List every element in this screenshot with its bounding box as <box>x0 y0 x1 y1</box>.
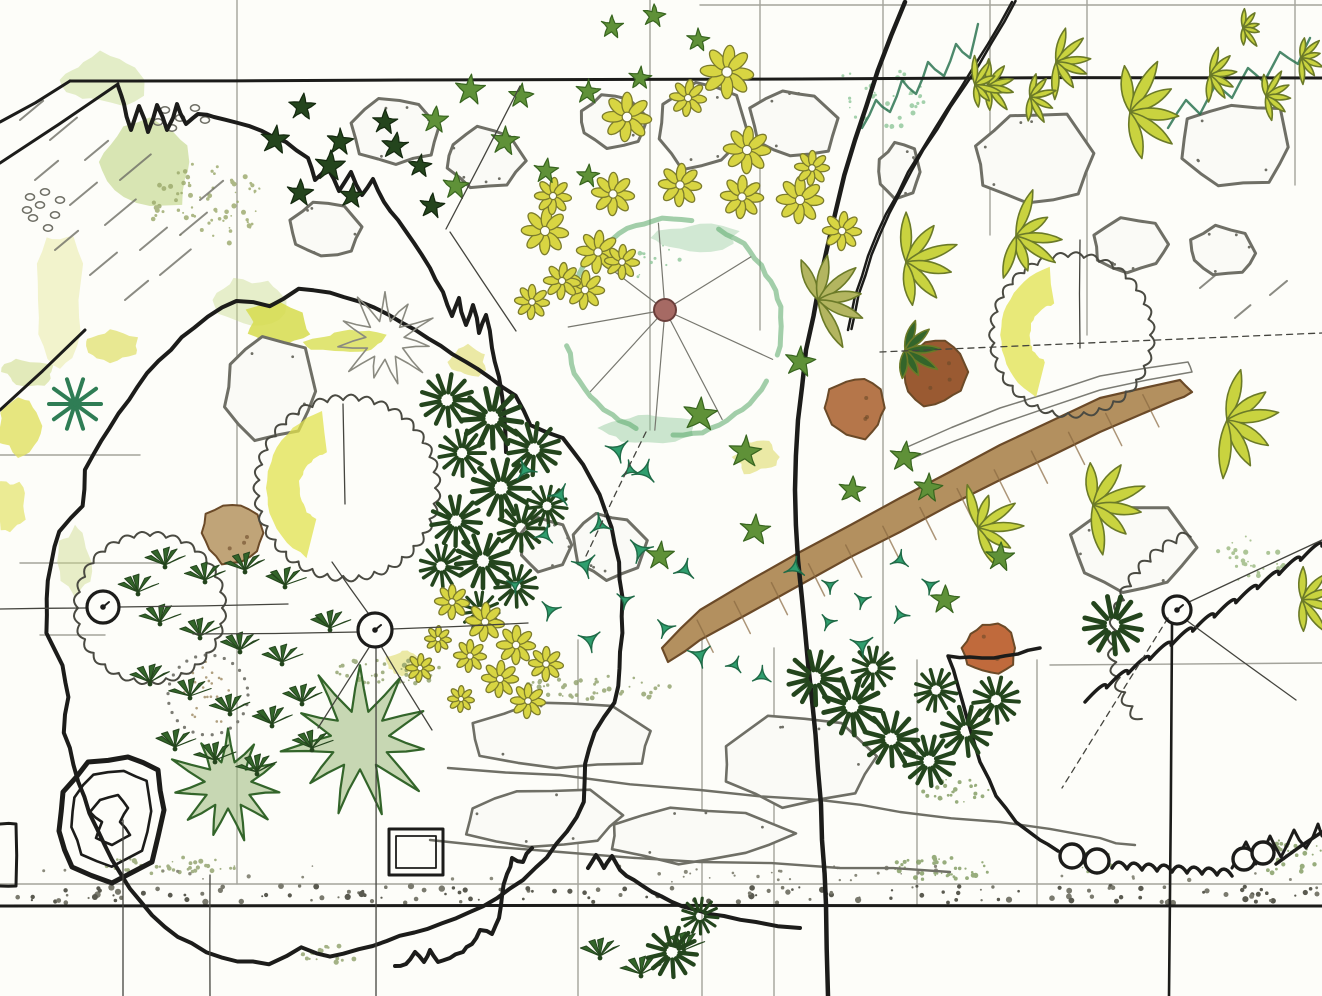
gravel-dot <box>671 881 673 883</box>
gravel-dot <box>261 895 263 897</box>
gravel-dot <box>112 894 114 896</box>
speckle-dot <box>558 693 562 697</box>
stone-texture-dot <box>452 147 455 150</box>
speckle-dot <box>216 165 219 168</box>
gravel-dot <box>785 889 790 894</box>
boulder-texture <box>982 635 986 639</box>
speckle-dot <box>973 792 977 796</box>
gravel-dot <box>798 886 800 888</box>
speckle-dot <box>1281 862 1285 866</box>
ray <box>456 562 475 564</box>
speckle-dot <box>200 228 204 232</box>
speckle-dot <box>316 958 318 960</box>
stone-texture-dot <box>310 207 313 210</box>
speckle-dot <box>885 101 890 106</box>
speckle-dot <box>849 73 851 75</box>
speckle-dot <box>381 678 384 681</box>
speckle-dot <box>986 871 989 874</box>
gravel-dot <box>915 885 918 888</box>
speckle-dot <box>1247 561 1249 563</box>
speckle-dot <box>1231 542 1233 544</box>
gravel-dot <box>312 865 314 867</box>
speckle-dot <box>1275 550 1280 555</box>
gravel-dot <box>278 883 284 889</box>
dotted-edge <box>168 682 171 685</box>
speckle-dot <box>884 124 888 128</box>
speckle-dot <box>918 95 921 98</box>
stone-texture-dot <box>673 812 676 815</box>
stone-texture-dot <box>525 840 528 843</box>
speckle-dot <box>1287 850 1289 852</box>
gravel-dot <box>63 888 67 892</box>
gravel-dot <box>522 898 525 901</box>
ray <box>535 423 537 441</box>
speckle-dot <box>596 692 598 694</box>
stone-texture-dot <box>779 726 782 729</box>
gravel-dot <box>736 899 741 904</box>
speckle-dot <box>537 685 542 690</box>
gravel-dot <box>218 888 223 893</box>
speckle-dot <box>172 861 174 863</box>
speckle-dot <box>1302 851 1307 856</box>
dotted-fill <box>227 689 230 692</box>
gravel-dot <box>422 888 427 893</box>
speckle-dot <box>654 686 658 690</box>
ray <box>553 507 567 509</box>
gravel-dot <box>850 879 852 881</box>
gravel-dot <box>645 896 648 899</box>
speckle-dot <box>874 94 877 97</box>
ray <box>967 738 969 755</box>
speckle-dot <box>162 210 165 213</box>
speckle-dot <box>654 257 657 260</box>
gravel-dot <box>1315 892 1320 897</box>
speckle-dot <box>335 671 339 675</box>
clump-base <box>283 585 288 590</box>
flower-center <box>684 94 691 101</box>
speckle-dot <box>641 252 644 255</box>
gravel-dot <box>31 899 33 901</box>
speckle-dot <box>341 664 345 668</box>
stone-texture-dot <box>1162 579 1165 582</box>
gravel-dot <box>1061 875 1064 878</box>
speckle-dot <box>971 873 976 878</box>
dotted-edge <box>238 669 241 672</box>
stone-texture-dot <box>690 158 693 161</box>
gravel-dot <box>168 893 173 898</box>
speckle-dot <box>899 123 904 128</box>
gravel-dot <box>1160 900 1164 904</box>
speckle-dot <box>233 867 236 870</box>
speckle-dot <box>1279 842 1283 846</box>
stone-texture-dot <box>589 104 592 107</box>
speckle-dot <box>925 794 929 798</box>
speckle-dot <box>637 275 640 278</box>
speckle-dot <box>951 873 953 875</box>
speckle-dot <box>401 668 403 670</box>
speckle-dot <box>352 957 357 962</box>
speckle-dot <box>249 182 252 185</box>
speckle-dot <box>191 214 194 217</box>
speckle-dot <box>334 960 339 965</box>
flower-center <box>458 696 463 701</box>
gravel-dot <box>298 884 301 887</box>
boulder-texture <box>928 386 932 390</box>
stone-texture-dot <box>716 155 719 158</box>
dotted-fill <box>220 720 223 723</box>
speckle-dot <box>231 203 236 208</box>
speckle-dot <box>974 785 976 787</box>
boulder-texture <box>245 535 249 539</box>
flower-center <box>435 636 440 641</box>
speckle-dot <box>958 780 962 784</box>
stone-texture-dot <box>476 812 479 815</box>
speckle-dot <box>958 867 962 871</box>
ray <box>472 489 492 492</box>
stone-texture-dot <box>502 753 505 756</box>
speckle-dot <box>404 673 408 677</box>
gravel-dot <box>596 887 601 892</box>
stone-texture-dot <box>555 793 558 796</box>
speckle-dot <box>189 861 193 865</box>
gravel-dot <box>1108 887 1111 890</box>
clump-base <box>255 772 260 777</box>
gravel-dot <box>88 897 90 899</box>
speckle-dot <box>935 785 939 789</box>
dotted-edge <box>236 720 239 723</box>
speckle-dot <box>849 107 851 109</box>
speckle-dot <box>913 875 918 880</box>
speckle-dot <box>227 241 232 246</box>
speckle-dot <box>132 858 137 863</box>
gravel-dot <box>781 886 785 890</box>
clump-base <box>173 747 178 752</box>
speckle-dot <box>204 864 208 868</box>
speckle-dot <box>1235 565 1238 568</box>
speckle-dot <box>177 171 180 174</box>
speckle-dot <box>954 867 957 870</box>
stone-texture-dot <box>291 355 294 358</box>
stone-texture-dot <box>648 851 651 854</box>
ray <box>495 587 510 588</box>
stone-texture-dot <box>498 177 501 180</box>
flower-center <box>549 192 556 199</box>
speckle-dot <box>907 859 910 862</box>
speckle-dot <box>168 184 173 189</box>
speckle-dot <box>345 674 349 678</box>
speckle-dot <box>562 695 564 697</box>
stone-texture-dot <box>354 233 357 236</box>
gravel-dot <box>789 878 791 880</box>
dotted-edge <box>185 659 188 662</box>
speckle-dot <box>593 691 596 694</box>
speckle-dot <box>916 860 921 865</box>
stone-texture-dot <box>716 96 719 99</box>
gravel-dot <box>288 893 292 897</box>
speckle-dot <box>193 860 197 864</box>
gravel-dot <box>777 878 780 881</box>
speckle-dot <box>633 677 636 680</box>
speckle-dot <box>1249 539 1251 541</box>
speckle-dot <box>649 691 653 695</box>
ray <box>935 696 936 711</box>
gravel-dot <box>468 897 473 902</box>
ray <box>447 567 462 569</box>
speckle-dot <box>668 249 670 251</box>
flower-symbol <box>543 262 581 300</box>
speckle-dot <box>1245 536 1247 538</box>
ray <box>1003 701 1019 702</box>
speckle-dot <box>254 192 256 194</box>
gravel-dot <box>337 896 339 898</box>
gravel-dot <box>980 899 982 901</box>
gravel-dot <box>809 898 812 901</box>
gravel-dot <box>657 872 661 876</box>
gravel-dot <box>184 897 189 902</box>
stone-texture-dot <box>1265 168 1268 171</box>
speckle-dot <box>947 794 950 797</box>
ray <box>442 572 443 587</box>
speckle-dot <box>981 861 983 863</box>
ray <box>672 959 673 976</box>
speckle-dot <box>903 860 907 864</box>
speckle-dot <box>546 683 549 686</box>
flower-center <box>795 195 804 204</box>
gravel-dot <box>946 901 950 905</box>
ray <box>431 522 448 525</box>
speckle-dot <box>150 872 154 876</box>
gravel-dot <box>695 868 697 870</box>
speckle-dot <box>182 212 184 214</box>
gravel-dot <box>64 900 69 905</box>
dotted-edge <box>170 711 173 714</box>
gravel-dot <box>1309 887 1313 891</box>
gravel-dot <box>911 886 913 888</box>
gravel-dot <box>15 895 20 900</box>
gravel-dot <box>582 890 587 895</box>
gravel-dot <box>247 874 251 878</box>
speckle-dot <box>206 197 210 201</box>
speckle-dot <box>890 126 893 129</box>
stone-texture-dot <box>992 183 995 186</box>
speckle-dot <box>337 944 342 949</box>
speckle-dot <box>246 218 249 221</box>
speckle-dot <box>898 70 902 74</box>
flower-center <box>594 248 602 256</box>
gravel-dot <box>463 887 468 892</box>
ray <box>1122 626 1142 629</box>
ray <box>527 507 541 509</box>
speckle-dot <box>951 791 953 793</box>
speckle-dot <box>162 186 167 191</box>
speckle-dot <box>188 182 190 184</box>
speckle-dot <box>241 210 246 215</box>
gravel-bottom-rule <box>0 905 1322 906</box>
gravel-dot <box>162 870 165 873</box>
gravel-dot <box>954 898 958 902</box>
dotted-fill <box>203 696 206 699</box>
dotted-edge <box>242 712 245 715</box>
dotted-edge <box>176 719 179 722</box>
speckle-dot <box>325 945 328 948</box>
gravel-dot <box>490 877 494 881</box>
speckle-dot <box>223 215 228 220</box>
speckle-dot <box>177 209 180 212</box>
dotted-fill <box>201 666 204 669</box>
gravel-dot <box>1132 877 1135 880</box>
speckle-dot <box>229 867 232 870</box>
dotted-edge <box>213 654 216 657</box>
speckle-dot <box>1279 848 1282 851</box>
stone-texture-dot <box>775 145 778 148</box>
gravel-dot <box>458 891 462 895</box>
speckle-dot <box>229 227 231 229</box>
gravel-dot <box>1265 891 1269 895</box>
ray <box>815 686 816 705</box>
speckle-dot <box>180 192 183 195</box>
speckle-dot <box>224 210 229 215</box>
speckle-dot <box>218 217 222 221</box>
speckle-dot <box>235 192 237 194</box>
speckle-dot <box>155 865 159 869</box>
boulder-texture <box>228 546 232 550</box>
speckle-dot <box>854 116 857 119</box>
dotted-fill <box>218 677 221 680</box>
gravel-dot <box>239 899 244 904</box>
speckle-dot <box>151 217 156 222</box>
gravel-dot <box>684 870 688 874</box>
gravel-dot <box>1006 897 1012 903</box>
gravel-dot <box>1243 885 1247 889</box>
flower-center <box>619 259 626 266</box>
speckle-dot <box>953 787 958 792</box>
gravel-dot <box>1315 886 1318 889</box>
gravel-dot <box>567 889 572 894</box>
speckle-dot <box>214 859 217 862</box>
speckle-dot <box>954 877 958 881</box>
gravel-dot <box>114 899 118 903</box>
boulder-texture <box>242 541 246 545</box>
ray <box>481 592 483 605</box>
gravel-dot <box>1294 895 1296 897</box>
speckle-dot <box>243 174 248 179</box>
gravel-dot <box>1202 891 1205 894</box>
speckle-dot <box>408 679 410 681</box>
speckle-dot <box>157 183 162 188</box>
speckle-dot <box>183 169 188 174</box>
speckle-dot <box>249 226 251 228</box>
speckle-dot <box>920 859 923 862</box>
flower-center <box>529 299 536 306</box>
gravel-dot <box>1224 892 1229 897</box>
speckle-dot <box>188 193 193 198</box>
flower-center <box>558 277 565 284</box>
stone-texture-dot <box>906 150 909 153</box>
speckle-dot <box>557 678 561 682</box>
speckle-dot <box>207 222 210 225</box>
speckle-dot <box>1275 868 1278 871</box>
speckle-dot <box>921 878 924 881</box>
dotted-edge <box>229 727 232 730</box>
speckle-dot <box>196 865 200 869</box>
gravel-dot <box>1114 899 1119 904</box>
speckle-dot <box>579 678 583 682</box>
speckle-dot <box>865 87 868 90</box>
gravel-dot <box>1260 888 1263 891</box>
speckle-dot <box>942 860 946 864</box>
gravel-dot <box>919 893 924 898</box>
gravel-dot <box>66 894 69 897</box>
ray <box>492 427 493 448</box>
dotted-fill <box>194 715 197 718</box>
dotted-edge <box>194 655 197 658</box>
ray <box>439 454 455 457</box>
ray <box>501 497 502 517</box>
gravel-dot <box>202 899 208 905</box>
gravel-dot <box>1058 886 1062 890</box>
flower-center <box>512 641 520 649</box>
speckle-dot <box>546 693 550 697</box>
speckle-dot <box>213 208 217 212</box>
speckle-dot <box>1299 869 1304 874</box>
speckle-dot <box>532 681 535 684</box>
gravel-dot <box>622 887 627 892</box>
stone-texture-dot <box>592 566 595 569</box>
clump-base <box>163 565 168 570</box>
stone-texture-dot <box>313 251 316 254</box>
gravel-dot <box>1138 896 1142 900</box>
speckle-dot <box>154 214 157 217</box>
speckle-dot <box>116 858 119 861</box>
speckle-dot <box>900 863 903 866</box>
speckle-dot <box>561 685 565 689</box>
dotted-edge <box>178 666 181 669</box>
dotted-edge <box>231 662 234 665</box>
gravel-dot <box>141 891 146 896</box>
speckle-dot <box>301 952 305 956</box>
speckle-dot <box>232 182 237 187</box>
ray <box>522 587 537 588</box>
speckle-dot <box>174 198 178 202</box>
speckle-dot <box>943 784 947 788</box>
speckle-dot <box>124 868 127 871</box>
gravel-dot <box>889 897 892 900</box>
flower-center <box>622 112 632 122</box>
speckle-dot <box>1312 854 1314 856</box>
gravel-dot <box>1017 890 1020 893</box>
flower-symbol <box>425 625 452 652</box>
flower-symbol <box>822 211 861 251</box>
speckle-dot <box>159 866 161 868</box>
ray <box>463 522 480 523</box>
stone-texture-dot <box>912 156 915 159</box>
speckle-dot <box>305 957 309 961</box>
gravel-dot <box>1289 878 1292 881</box>
speckle-dot <box>1231 551 1235 555</box>
stone-texture-dot <box>590 564 593 567</box>
flower-center <box>543 661 550 668</box>
gravel-dot <box>444 893 447 896</box>
speckle-dot <box>945 779 947 781</box>
stone-texture-dot <box>1019 121 1022 124</box>
gravel-dot <box>670 886 675 891</box>
speckle-dot <box>377 680 380 683</box>
gravel-dot <box>855 897 861 903</box>
speckle-dot <box>538 679 542 683</box>
clump-base <box>300 702 305 707</box>
gravel-dot <box>380 897 382 899</box>
gravel-dot <box>1242 896 1248 902</box>
